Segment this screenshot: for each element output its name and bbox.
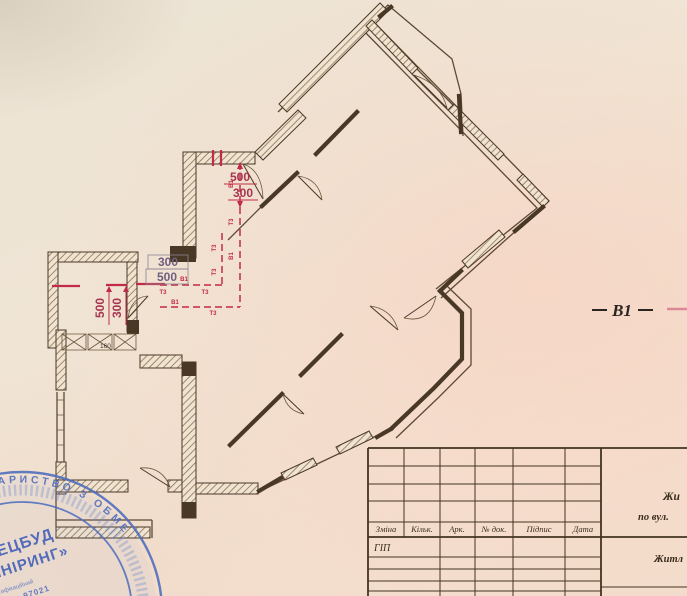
dim-arrow — [237, 201, 243, 208]
hatched-wall — [462, 230, 505, 268]
hall-wall — [301, 335, 341, 375]
dim-arrow — [106, 286, 112, 292]
hatched-wall — [279, 3, 388, 112]
col-doc: № док. — [481, 524, 507, 534]
riser-mark: Т3 — [209, 311, 217, 317]
wall-corner-block — [182, 502, 196, 518]
inner-wall-ne — [361, 28, 537, 289]
col-sign: Підпис — [525, 524, 551, 534]
wall-segment — [515, 207, 543, 231]
floor-plan-sheet: 160 500 300 300 — [0, 0, 687, 596]
hatched-wall — [48, 252, 138, 262]
wall-segment — [377, 429, 391, 437]
hatched-wall — [182, 362, 196, 518]
riser-mark: Т3 — [229, 218, 235, 226]
hatched-wall — [517, 174, 549, 207]
company-stamp: • УКРАЇНА • ТОВАРИСТВО З ОБМЕ ПЕЦБУД ИНІ… — [0, 472, 162, 596]
plumbing-annotations: 500 300 300 500 500 300 В1 Т3 В1 Т3 Т3 В… — [52, 150, 258, 325]
object-title-line1: Жи — [662, 491, 681, 503]
floor-plan-drawing: 160 — [48, 3, 549, 538]
riser-mark: Т3 — [201, 290, 209, 296]
fixture-size-label: 160 — [100, 343, 111, 350]
wall-segment — [316, 112, 357, 154]
bay-wall — [392, 291, 462, 428]
wall-segment — [459, 96, 461, 132]
wall-segment — [262, 173, 297, 206]
riser-mark: Т3 — [159, 290, 167, 296]
dim-label: 500 — [157, 270, 177, 284]
object-title-line3: Житл — [653, 554, 684, 565]
hall-wall — [230, 394, 282, 445]
dim-label: 300 — [233, 186, 253, 200]
riser-mark: Т3 — [212, 268, 218, 276]
riser-mark: В1 — [171, 300, 179, 306]
riser-callout-label: В1 — [611, 301, 632, 320]
riser-mark: В1 — [229, 180, 235, 188]
riser-mark: Т3 — [212, 244, 218, 252]
dim-label: 300 — [158, 255, 178, 269]
blueprint-sheet: 160 500 300 300 — [0, 0, 687, 596]
wall-segment — [440, 271, 461, 291]
row-gip: ГІП — [373, 543, 391, 554]
hatched-wall — [140, 355, 182, 368]
wall-corner-block — [127, 320, 139, 334]
riser-mark: В1 — [229, 252, 235, 260]
hatched-wall — [56, 330, 66, 390]
b1-callout: В1 — [592, 301, 687, 320]
col-sheet: Арк. — [448, 524, 465, 534]
wall-corner-block — [182, 362, 196, 376]
bathroom-fixtures — [62, 334, 136, 350]
wall-segment — [259, 478, 281, 491]
hatched-wall — [281, 458, 317, 480]
col-count: Кільк. — [410, 524, 433, 534]
col-change: Зміна — [376, 524, 396, 534]
dim-label: 300 — [110, 298, 124, 318]
outer-wall-ne — [370, 18, 549, 298]
object-title-line2: по вул. — [638, 512, 669, 523]
bedroom-window-wall — [196, 483, 258, 494]
riser-mark: В1 — [180, 277, 188, 283]
hatched-wall — [183, 152, 196, 258]
hatched-wall — [255, 110, 306, 160]
dim-label: 500 — [93, 298, 107, 318]
title-block: Зміна Кільк. Арк. № док. Підпис Дата ГІП… — [368, 448, 687, 596]
hatched-wall — [448, 104, 504, 160]
hatched-wall — [366, 20, 418, 74]
col-date: Дата — [572, 524, 593, 534]
